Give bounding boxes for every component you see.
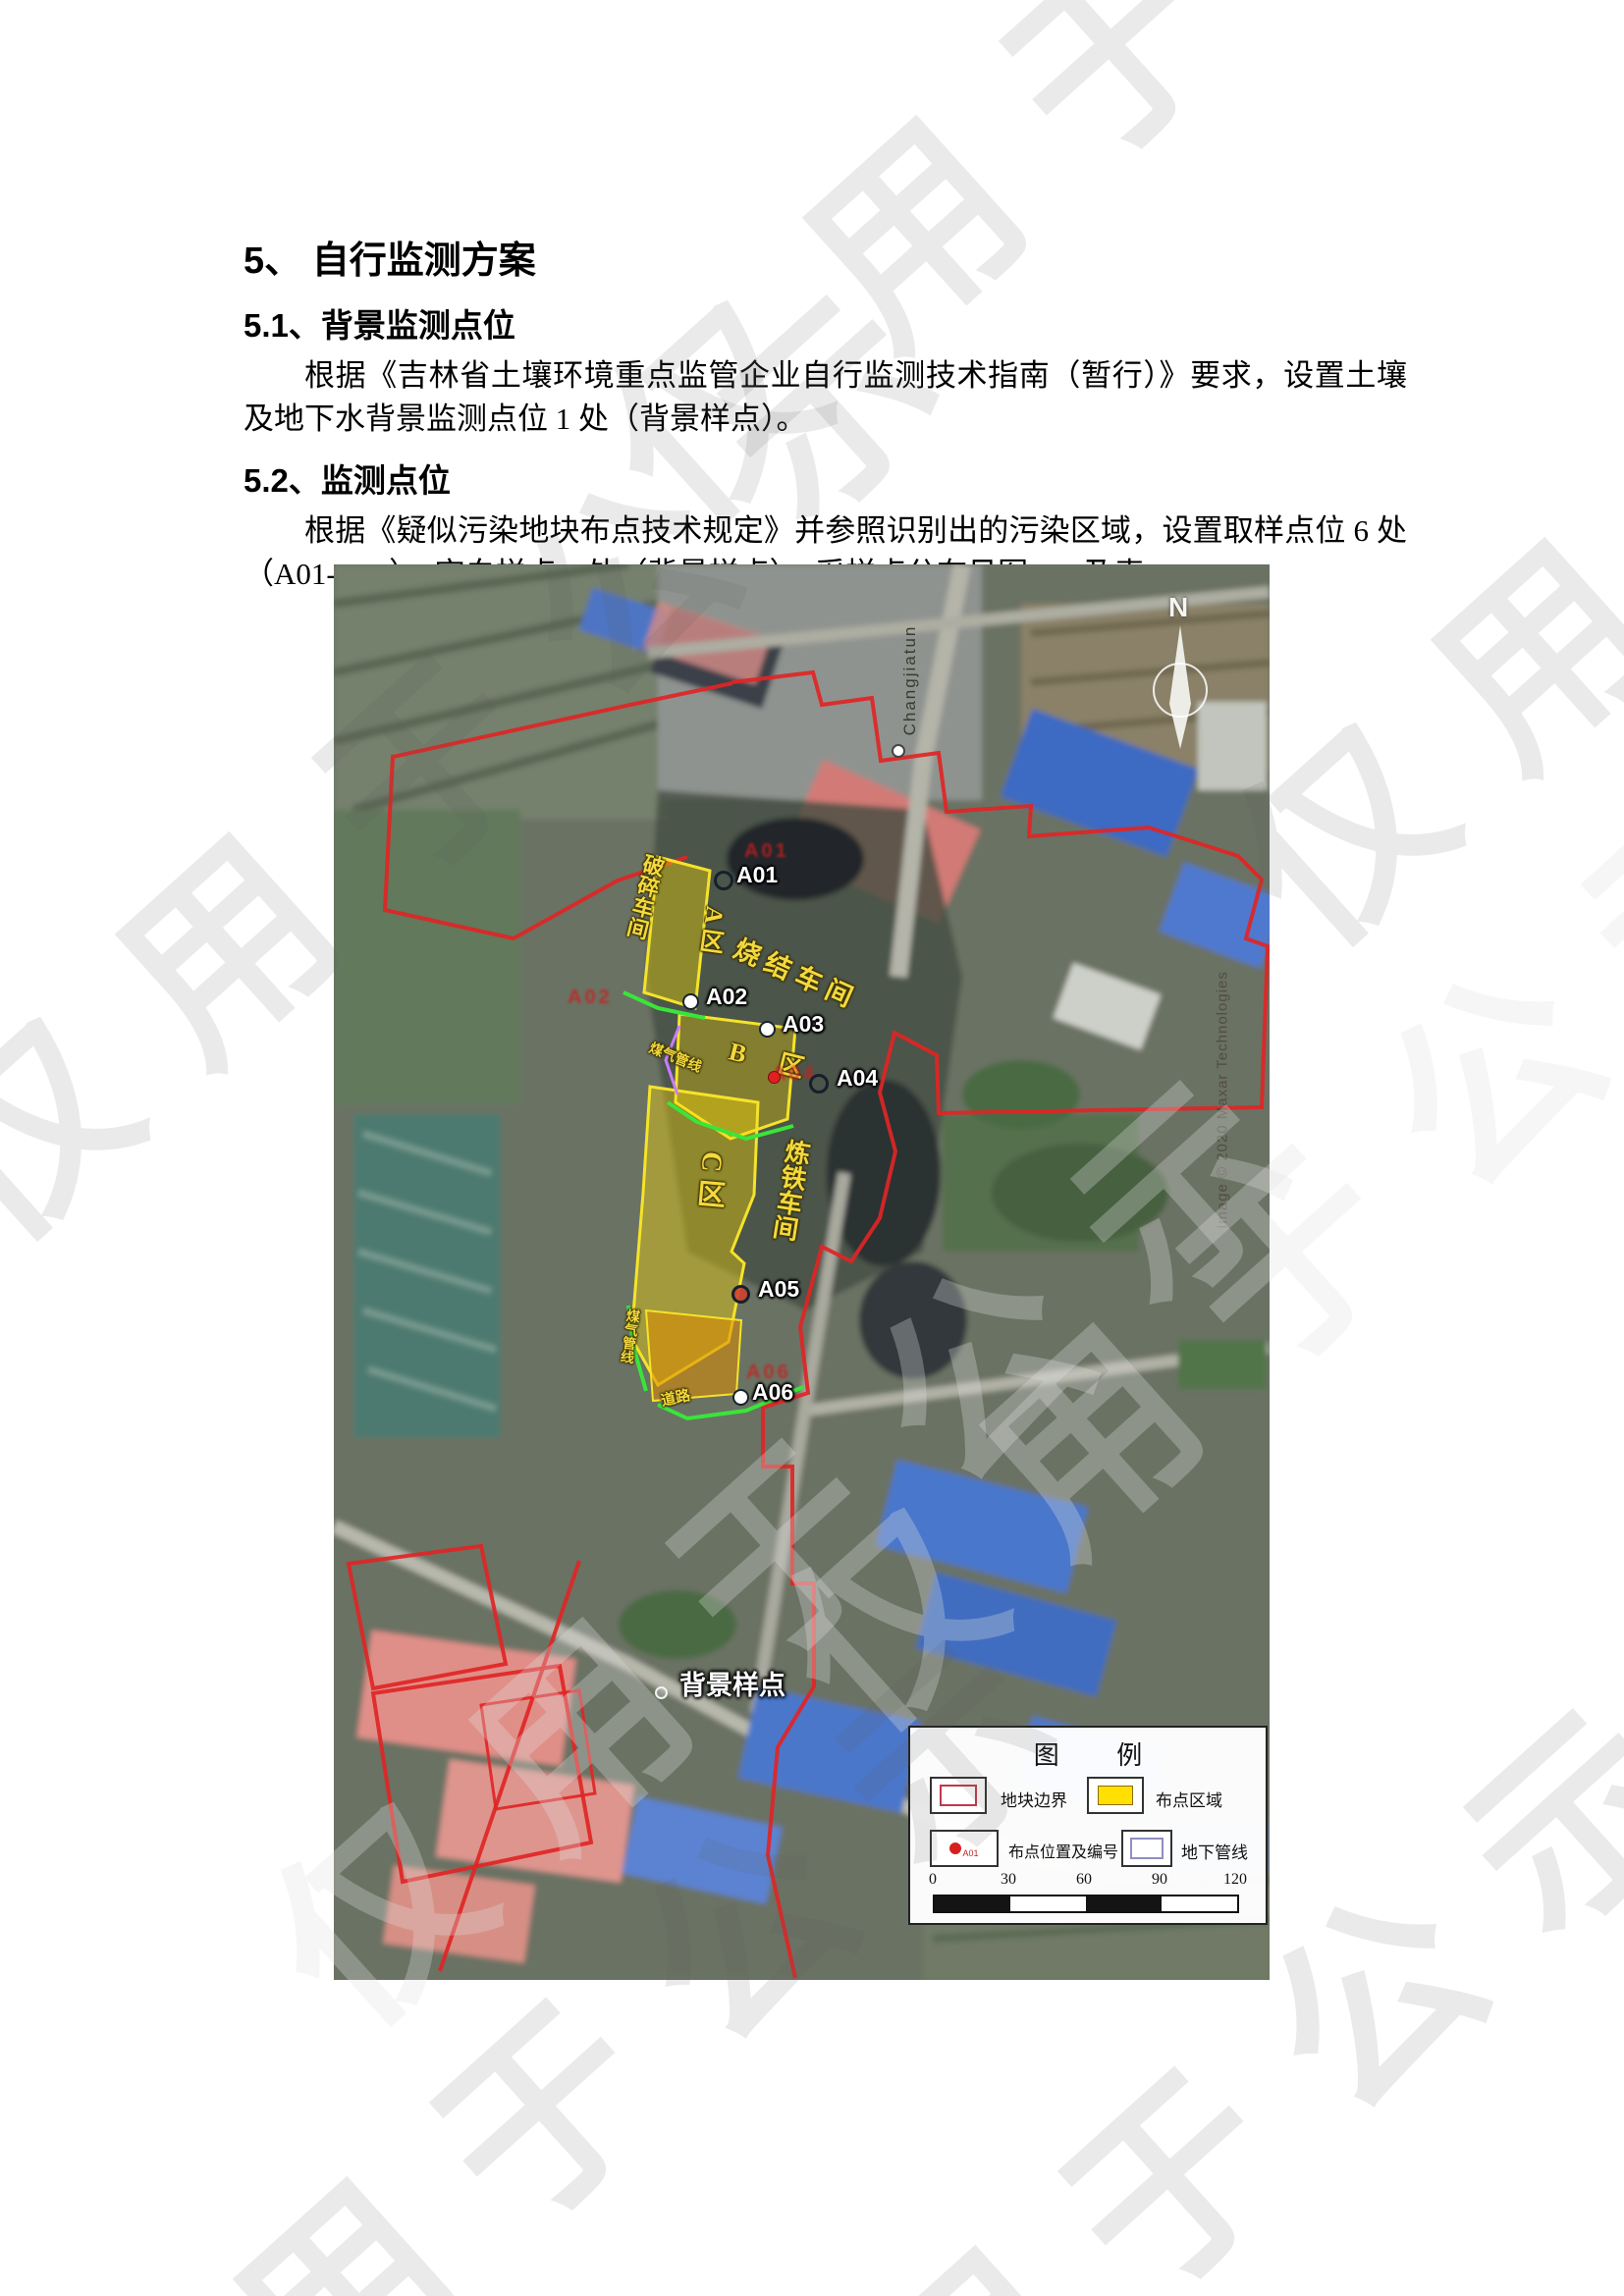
imagery-attribution: Image © 2020 Maxar Technologies <box>1215 938 1231 1262</box>
legend-label-sampling-point: 布点位置及编号 <box>1008 1839 1118 1862</box>
zone-c-label: C 区 <box>687 1149 733 1209</box>
legend-symbol-sampling-point: A01 <box>930 1830 999 1867</box>
marker-a02 <box>682 993 699 1010</box>
zone-a-label: A 区 <box>690 904 731 955</box>
legend-title: 图 例 <box>910 1735 1266 1772</box>
point-label-a01: A01 <box>736 862 778 888</box>
marker-a01 <box>714 871 733 890</box>
section-paragraph-5-1: 根据《吉林省土壤环境重点监管企业自行监测技术指南（暂行）》要求，设置土壤及地下水… <box>244 354 1407 441</box>
legend-red-dot-icon <box>949 1842 961 1854</box>
north-label: N <box>1168 592 1188 623</box>
report-page: 仅用于公示 仅用于公示 仅用于公示 仅用于公示 仅用于公示 仅用于公示 仅用于公… <box>0 0 1624 2296</box>
street-label: Changjiatun <box>900 602 920 759</box>
background-point-label: 背景样点 <box>679 1664 785 1702</box>
legend-symbol-sampling-area <box>1087 1777 1144 1814</box>
section-heading-5-1: 5.1、背景监测点位 <box>244 299 1407 347</box>
point-label-a06: A06 <box>752 1379 793 1406</box>
legend-label-underground-pipeline: 地下管线 <box>1181 1839 1248 1863</box>
point-label-a05: A05 <box>758 1276 799 1303</box>
legend-symbol-underground-pipeline <box>1121 1830 1172 1867</box>
legend-point-id-text: A01 <box>962 1848 978 1858</box>
scale-tick: 30 <box>1001 1871 1016 1889</box>
marker-a06 <box>732 1389 749 1406</box>
marker-a03 <box>759 1021 776 1038</box>
red-point-label: A02 <box>568 987 613 1009</box>
section-heading-5-2: 5.2、监测点位 <box>244 454 1407 502</box>
legend-label-sampling-area: 布点区域 <box>1156 1787 1222 1811</box>
marker-a04-dot <box>768 1071 781 1084</box>
scale-tick: 120 <box>1223 1871 1247 1889</box>
document-body: 5、 自行监测方案 5.1、背景监测点位 根据《吉林省土壤环境重点监管企业自行监… <box>244 230 1407 606</box>
legend-symbol-site-boundary <box>930 1777 987 1814</box>
point-label-a03: A03 <box>783 1011 824 1038</box>
marker-a04-ring <box>809 1074 829 1094</box>
scale-tick: 0 <box>929 1871 937 1889</box>
red-point-label: A01 <box>744 840 789 863</box>
marker-a05 <box>731 1285 750 1304</box>
scale-bar <box>933 1895 1239 1913</box>
marker-background-point <box>655 1686 668 1699</box>
scale-tick: 90 <box>1152 1871 1167 1889</box>
legend-label-site-boundary: 地块边界 <box>1001 1787 1067 1811</box>
map-legend: 图 例 地块边界 布点区域 A01 布点位置及编号 地下管线 0 30 60 9… <box>908 1726 1268 1925</box>
point-label-a04: A04 <box>837 1065 878 1092</box>
page-title: 5、 自行监测方案 <box>244 230 1407 284</box>
scale-tick: 60 <box>1076 1871 1092 1889</box>
figure-5-1-map: Changjiatun Image © 2020 Maxar Technolog… <box>334 564 1270 1980</box>
point-label-a02: A02 <box>706 984 747 1010</box>
